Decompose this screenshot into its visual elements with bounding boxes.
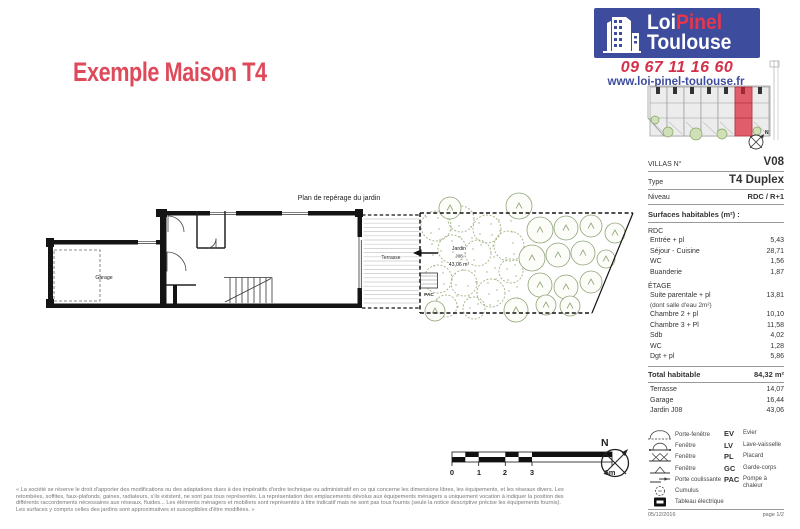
walls (46, 209, 363, 308)
info-label: Niveau (648, 194, 670, 201)
total-label: Total habitable (648, 370, 700, 379)
legend-abbreviations: EVEvierLVLave-vaissellePLPlacardGCGarde-… (724, 430, 785, 495)
section-header: ÉTAGE (648, 278, 784, 291)
disclaimer-line: différents raccordements nécessaires aux… (16, 500, 636, 507)
disclaimer-text: « La société se réserve le droit d'appor… (16, 487, 636, 513)
disclaimer-line: « La société se réserve le droit d'appor… (16, 487, 636, 494)
surfaces-table: RDCEntrée + pl5,43Séjour - Cuisine28,71W… (648, 223, 784, 363)
surface-label: Sdb (648, 331, 662, 342)
annex-label: Terrasse (648, 385, 677, 396)
legend-abbreviation: PLPlacard (724, 453, 785, 460)
svg-text:N: N (601, 437, 609, 449)
page-title: Exemple Maison T4 (73, 57, 267, 88)
legend-item: Porte-fenêtre (648, 429, 724, 440)
villa-info-row: TypeT4 Duplex (648, 172, 784, 190)
legend-abbreviation: GCGarde-corps (724, 465, 785, 472)
garage-door-outline (54, 250, 100, 301)
annex-value: 14,07 (766, 385, 784, 396)
abbreviation-code: PL (724, 453, 743, 460)
svg-text:J08: J08 (455, 254, 463, 259)
page-indicator: page 1/2 (763, 512, 784, 518)
surface-row: Dgt + pl5,86 (648, 352, 784, 363)
floor-plan: Plan de repérage du jardin Garage Terras… (30, 183, 640, 400)
abbreviation-label: Placard (743, 453, 763, 460)
surface-row: Suite parentale + pl13,81 (648, 291, 784, 302)
surface-row: WC1,56 (648, 257, 784, 268)
abbreviation-label: Pompe à chaleur (743, 476, 785, 490)
site-highlighted-villa (735, 87, 752, 136)
surface-value: 5,86 (770, 352, 784, 363)
surface-label: Dgt + pl (648, 352, 674, 363)
annex-surface-row: Jardin J0843,06 (648, 406, 784, 417)
surface-value: 4,02 (770, 331, 784, 342)
surface-label: Buanderie (648, 268, 682, 279)
annex-surface-row: Garage16,44 (648, 396, 784, 407)
terrasse-label: Terrasse (381, 255, 400, 261)
surface-value: 10,10 (766, 310, 784, 321)
annex-value: 16,44 (766, 396, 784, 407)
surface-label: Entrée + pl (648, 236, 684, 247)
legend-symbols: Porte-fenêtreFenêtreFenêtreFenêtrePorte … (648, 429, 724, 508)
porte-fenetre-icon (648, 429, 672, 441)
surface-row: Sdb4,02 (648, 331, 784, 342)
surface-row: Buanderie1,87 (648, 268, 784, 279)
annex-label: Garage (648, 396, 673, 407)
abbreviation-label: Evier (743, 430, 757, 437)
villa-info-row: NiveauRDC / R+1 (648, 190, 784, 205)
abbreviation-code: LV (724, 442, 743, 449)
panel-footer: 05/12/2016 page 1/2 (648, 509, 784, 518)
pac-label: PAC (424, 292, 434, 298)
pac-unit (421, 273, 438, 288)
legend-item: Cumulus (648, 485, 724, 496)
window-openings (138, 211, 361, 292)
abbreviation-label: Garde-corps (743, 465, 776, 472)
abbreviation-label: Lave-vaisselle (743, 442, 781, 449)
surface-label: WC (648, 257, 662, 268)
svg-text:3: 3 (530, 468, 534, 477)
surfaces-title: Surfaces habitables (m²) : (648, 205, 784, 223)
surface-label: WC (648, 342, 662, 353)
annex-value: 43,06 (766, 406, 784, 417)
legend-item-label: Cumulus (675, 488, 699, 494)
svg-text:Jardin: Jardin (452, 246, 466, 252)
disclaimer-line: retombées, soffites, faux-plafonds, gain… (16, 494, 636, 501)
legend-item-label: Fenêtre (675, 454, 696, 460)
legend-abbreviation: LVLave-vaisselle (724, 442, 785, 449)
annex-surface-row: Terrasse14,07 (648, 385, 784, 396)
annex-surfaces-rows: Terrasse14,07Garage16,44Jardin J0843,06 (648, 385, 784, 417)
section-header: RDC (648, 223, 784, 236)
surface-label: Chambre 2 + pl (648, 310, 698, 321)
svg-text:1: 1 (477, 468, 481, 477)
abbreviation-code: EV (724, 430, 743, 437)
total-value: 84,32 m² (754, 370, 784, 379)
disclaimer-line: Les surfaces y compris celles des jardin… (16, 507, 636, 514)
surface-value: 1,56 (770, 257, 784, 268)
surface-label: Chambre 3 + Pl (648, 321, 699, 332)
info-value: T4 Duplex (729, 174, 784, 186)
surface-row: Entrée + pl5,43 (648, 236, 784, 247)
compass-icon: N (592, 434, 638, 484)
annex-label: Jardin J08 (648, 406, 682, 417)
svg-text:43,06 m²: 43,06 m² (449, 262, 470, 268)
surface-row: Chambre 3 + Pl11,58 (648, 321, 784, 332)
logo-toulouse: Toulouse (647, 31, 731, 54)
surface-value: 1,87 (770, 268, 784, 279)
svg-text:2: 2 (503, 468, 507, 477)
logo-wordmark: LoiPinel Toulouse (647, 13, 731, 53)
plan-title: Plan de repérage du jardin (298, 195, 381, 202)
tableau-electrique-icon (648, 496, 672, 508)
surface-value: 11,58 (767, 321, 784, 332)
jardin-arrow-icon (413, 249, 438, 256)
surface-value: 13,81 (766, 291, 784, 302)
legend-item-label: Porte coulissante (675, 477, 721, 483)
legend-item-label: Fenêtre (675, 466, 696, 472)
info-value: RDC / R+1 (748, 192, 784, 201)
stairs (224, 278, 272, 304)
info-label: VILLAS N° (648, 161, 682, 168)
document-date: 05/12/2016 (648, 512, 676, 518)
abbreviation-code: PAC (724, 476, 743, 490)
surface-note: (dont salle d'eau 2m²) (648, 302, 784, 310)
legend-item: Tableau électrique (648, 497, 724, 508)
villa-data-panel: VILLAS N°V08TypeT4 DuplexNiveauRDC / R+1… (648, 154, 784, 417)
legend-item-label: Fenêtre (675, 443, 696, 449)
plan-sheet: Exemple Maison T4 LoiPinel (0, 0, 800, 529)
garage-label: Garage (95, 275, 112, 281)
fenetre-arcs-icon (648, 440, 672, 452)
fenetre-double-icon (648, 451, 672, 463)
abbreviation-code: GC (724, 465, 743, 472)
surface-row: WC1,28 (648, 342, 784, 353)
svg-text:0: 0 (450, 468, 454, 477)
cumulus-icon (648, 485, 672, 497)
terrasse-hatch (364, 219, 420, 303)
legend-item: Fenêtre (648, 452, 724, 463)
legend-abbreviation: EVEvier (724, 430, 785, 437)
surface-value: 5,43 (770, 236, 784, 247)
legend-item-label: Porte-fenêtre (675, 432, 710, 438)
surface-row: Chambre 2 + pl10,10 (648, 310, 784, 321)
villa-info-rows: VILLAS N°V08TypeT4 DuplexNiveauRDC / R+1 (648, 154, 784, 205)
fenetre-simple-icon (648, 463, 672, 475)
buildings-icon (601, 11, 643, 55)
porte-coulissante-icon (648, 474, 672, 486)
svg-text:N: N (765, 130, 769, 136)
legend-item: Porte coulissante (648, 474, 724, 485)
info-value: V08 (764, 156, 784, 168)
surface-value: 1,28 (770, 342, 784, 353)
total-row: Total habitable 84,32 m² (648, 366, 784, 383)
surface-value: 28,71 (766, 247, 784, 258)
villa-info-row: VILLAS N°V08 (648, 154, 784, 172)
legend-item: Fenêtre (648, 463, 724, 474)
legend-item-label: Tableau électrique (675, 499, 724, 505)
surface-row: Séjour - Cuisine28,71 (648, 247, 784, 258)
logo: LoiPinel Toulouse (594, 8, 760, 58)
site-location-thumbnail: N (646, 58, 786, 154)
door-swings (167, 216, 217, 272)
legend-abbreviation: PACPompe à chaleur (724, 476, 785, 490)
surface-label: Suite parentale + pl (648, 291, 711, 302)
legend-item: Fenêtre (648, 440, 724, 451)
info-label: Type (648, 179, 663, 186)
surface-label: Séjour - Cuisine (648, 247, 700, 258)
